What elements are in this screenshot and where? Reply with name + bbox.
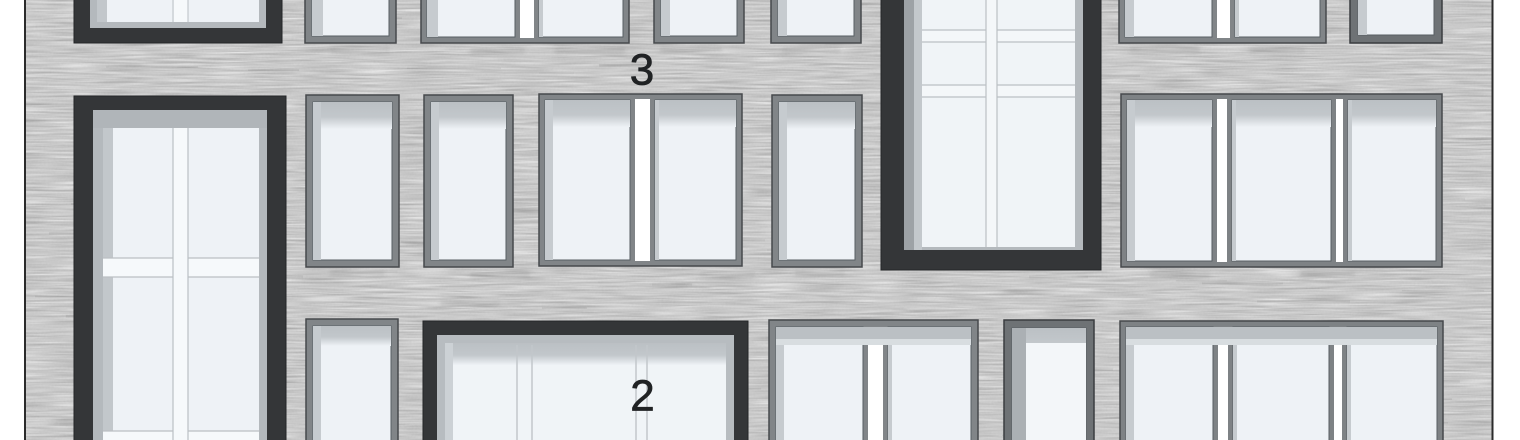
svg-text:2: 2 (630, 372, 654, 421)
svg-text:3: 3 (630, 46, 654, 95)
